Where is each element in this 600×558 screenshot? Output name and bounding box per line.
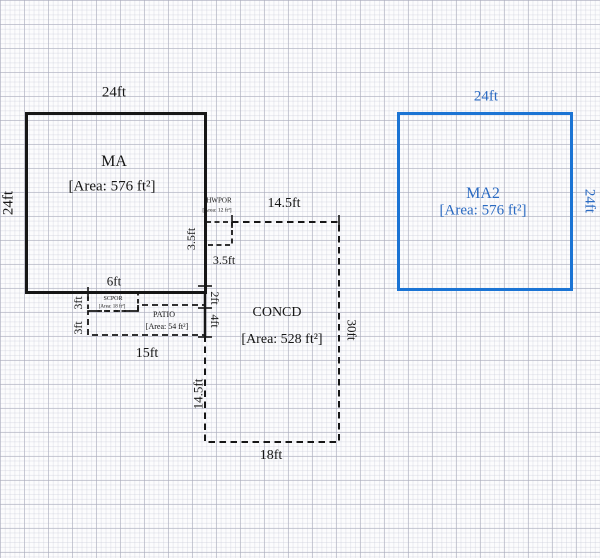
concd-top-dimension: 14.5ft	[267, 197, 300, 211]
scpor-room-name: SCPOR	[103, 296, 122, 302]
hwpor-bottom-dimension: 3.5ft	[213, 254, 235, 266]
patio-bottom-dimension: 15ft	[136, 347, 159, 361]
wall-2ft-dimension: 2ft	[209, 291, 221, 304]
concd-room-area: [Area: 528 ft²]	[241, 333, 322, 347]
scpor-top-dimension: 6ft	[107, 275, 121, 288]
ma-top-dimension: 24ft	[102, 86, 126, 101]
concd-left-dimension: 14.5ft	[192, 379, 205, 410]
ma2-right-dimension: 24ft	[582, 189, 597, 213]
patio-left-dimension: 3ft	[72, 321, 84, 334]
hwpor-left-dimension: 3.5ft	[185, 228, 197, 250]
ma-outline[interactable]	[27, 114, 206, 293]
sketch-shapes-layer	[0, 0, 600, 558]
ma-left-dimension: 24ft	[2, 191, 17, 215]
ma-room-area: [Area: 576 ft²]	[69, 180, 156, 195]
wall-4ft-dimension: 4ft	[209, 314, 221, 327]
ma2-top-dimension: 24ft	[474, 90, 498, 105]
scpor-left-dimension: 3ft	[72, 296, 84, 309]
ma2-room-area: [Area: 576 ft²]	[440, 204, 527, 219]
hwpor-room-name: HWPOR	[206, 198, 231, 205]
ma2-room-name: MA2	[466, 186, 500, 202]
hwpor-outline[interactable]	[206, 222, 232, 245]
concd-room-name: CONCD	[252, 306, 301, 320]
patio-room-name: PATIO	[153, 311, 175, 319]
hwpor-room-area: [Area: 12 ft²]	[202, 208, 231, 214]
patio-room-area: [Area: 54 ft²]	[146, 323, 188, 331]
scpor-room-area: [Area: 18 ft²]	[99, 305, 126, 310]
concd-right-dimension: 30ft	[346, 320, 359, 341]
concd-bottom-dimension: 18ft	[260, 449, 283, 463]
sketch-canvas[interactable]: 24ft 24ft MA [Area: 576 ft²] HWPOR [Area…	[0, 0, 600, 558]
ma-room-name: MA	[101, 154, 127, 170]
